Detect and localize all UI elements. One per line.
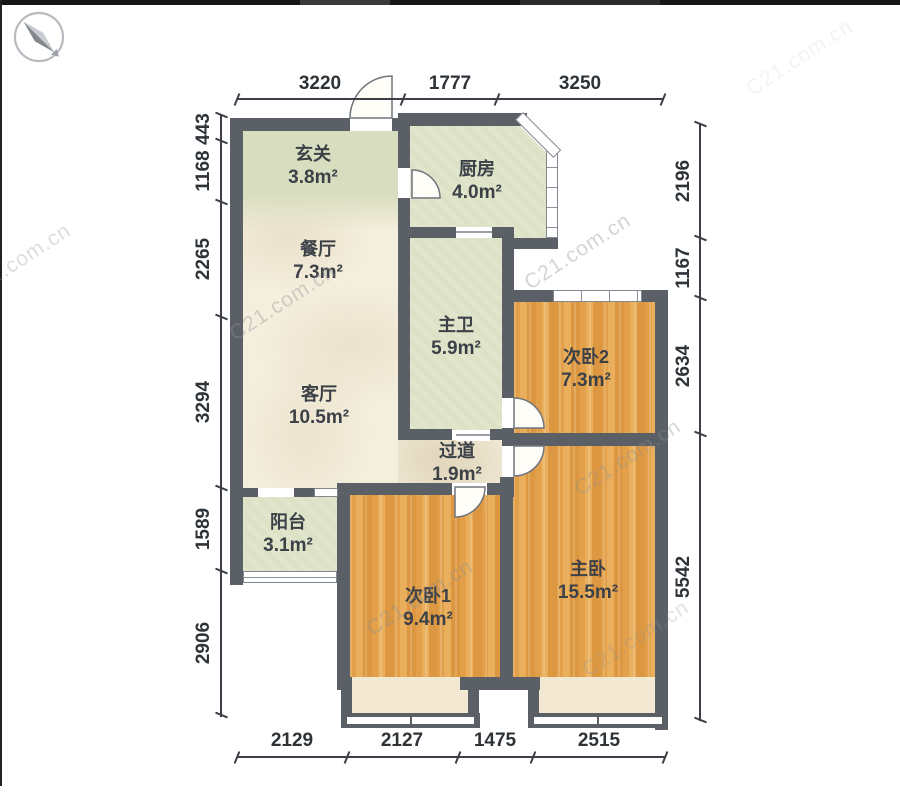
room-area: 7.3m² (561, 369, 611, 392)
dimension-label: 2196 (673, 160, 695, 202)
room-name: 餐厅 (293, 238, 343, 261)
door-arcs (0, 0, 900, 807)
dimension-label: 2129 (271, 730, 313, 752)
dimension-line-top (237, 98, 663, 100)
room-area: 3.8m² (288, 166, 338, 189)
dimension-label: 1777 (429, 73, 471, 95)
room-label-master-bath: 主卫5.9m² (431, 314, 481, 360)
kitchen-door-arc (412, 170, 440, 198)
dimension-label: 443 (193, 113, 215, 145)
dimension-label: 5542 (673, 556, 695, 598)
master-door-opening (502, 446, 514, 477)
dimension-label: 2265 (193, 238, 215, 280)
room-label-bedroom2: 次卧27.3m² (561, 346, 611, 392)
bedroom1-door-arc (455, 487, 485, 517)
balcony-door-opening (258, 488, 294, 497)
room-label-living: 客厅10.5m² (289, 383, 349, 429)
bedroom2-door-opening (502, 398, 514, 428)
room-label-kitchen: 厨房4.0m² (452, 158, 502, 204)
dimension-label: 2906 (193, 622, 215, 664)
room-label-entry: 玄关3.8m² (288, 143, 338, 189)
entry-door-arc (350, 76, 392, 118)
dimension-label: 1167 (673, 247, 695, 288)
dimension-label: 2515 (578, 730, 620, 752)
room-area: 4.0m² (452, 181, 502, 204)
room-name: 阳台 (263, 511, 313, 534)
master-door-arc (514, 446, 544, 476)
dimension-label: 3294 (193, 381, 215, 423)
dimension-label: 1475 (474, 730, 516, 752)
dimension-label: 3250 (559, 73, 601, 95)
room-name: 主卧 (558, 558, 618, 581)
dimension-label: 2634 (673, 345, 695, 387)
room-name: 玄关 (288, 143, 338, 166)
dimension-line-right (699, 124, 701, 721)
room-name: 客厅 (289, 383, 349, 406)
dimension-label: 2127 (381, 730, 423, 752)
room-label-hallway: 过道1.9m² (432, 440, 482, 486)
kitchen-door-opening (398, 168, 410, 198)
room-area: 10.5m² (289, 406, 349, 429)
dimension-label: 1168 (193, 150, 215, 191)
room-area: 5.9m² (431, 337, 481, 360)
dimension-line-bottom (237, 756, 665, 758)
dimension-line-left (220, 115, 222, 717)
dimension-label: 3220 (299, 73, 341, 95)
room-name: 主卫 (431, 314, 481, 337)
room-label-balcony: 阳台3.1m² (263, 511, 313, 557)
room-name: 厨房 (452, 158, 502, 181)
room-name: 过道 (432, 440, 482, 463)
room-area: 15.5m² (558, 581, 618, 604)
room-name: 次卧2 (561, 346, 611, 369)
bedroom2-door-arc (514, 398, 544, 428)
room-label-master-bedroom: 主卧15.5m² (558, 558, 618, 604)
room-area: 1.9m² (432, 463, 482, 486)
room-area: 3.1m² (263, 534, 313, 557)
dimension-label: 1589 (193, 508, 215, 550)
